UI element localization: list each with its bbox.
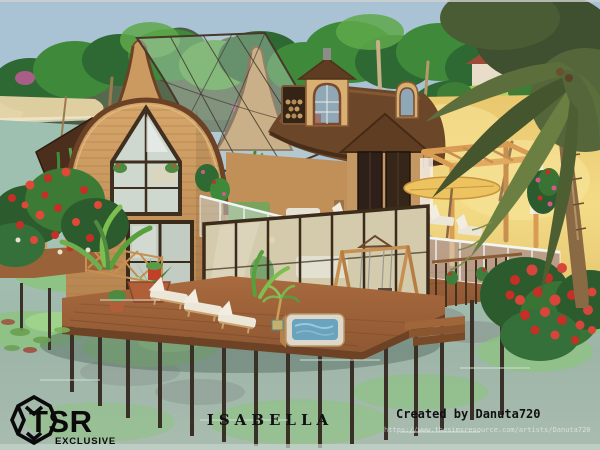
scene-illustration (0, 0, 600, 450)
bottom-edge (0, 444, 600, 450)
chimney (323, 48, 331, 60)
woodpile-niche (282, 86, 306, 124)
top-edge (0, 0, 600, 2)
hanging-pot (446, 271, 458, 285)
tsr-screenshot: TSR EXCLUSIVE ISABELLA Created by Danuta… (0, 0, 600, 450)
hot-tub (280, 314, 344, 348)
dormer-small (396, 82, 418, 118)
window-plant (113, 163, 127, 173)
